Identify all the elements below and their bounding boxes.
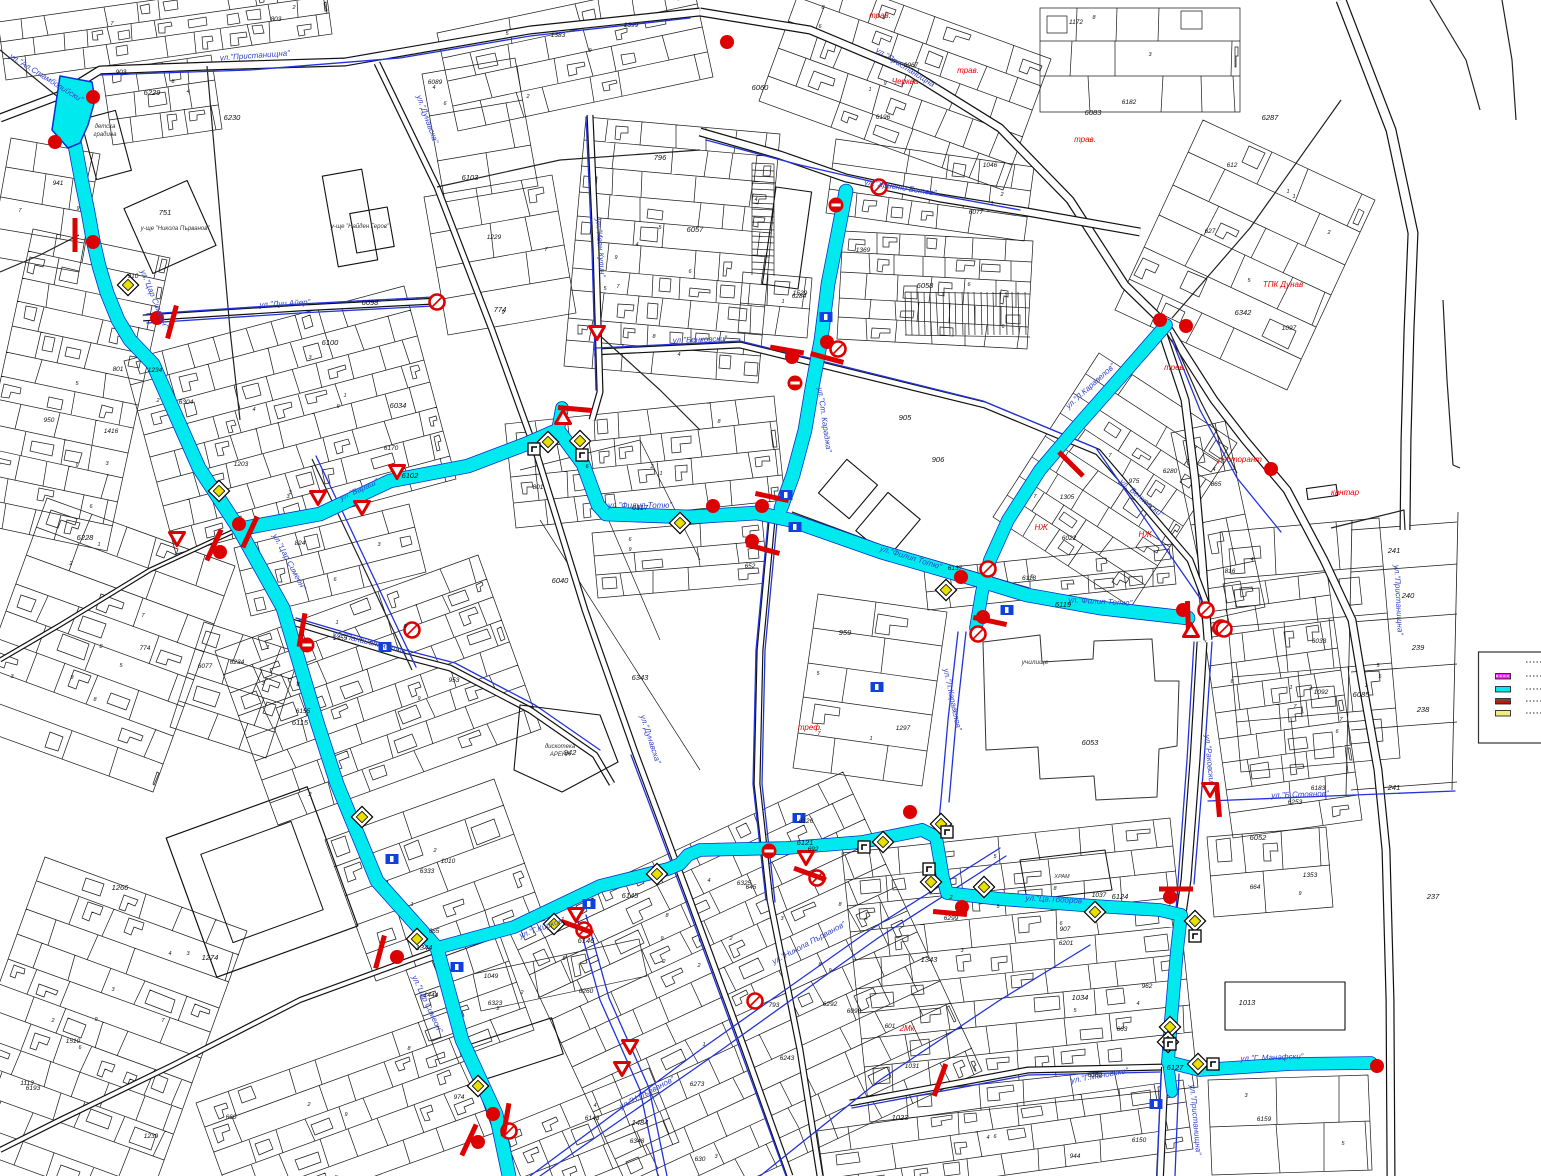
svg-text:601: 601	[885, 1023, 896, 1030]
svg-text:6159: 6159	[1257, 1116, 1272, 1123]
svg-text:974: 974	[454, 1094, 465, 1101]
svg-text:664: 664	[1250, 884, 1261, 891]
svg-text:4: 4	[677, 352, 680, 358]
svg-text:1: 1	[1286, 189, 1289, 195]
svg-text:4: 4	[754, 197, 757, 203]
svg-text:6343: 6343	[632, 673, 650, 682]
svg-text:6234: 6234	[230, 659, 245, 666]
svg-text:1203: 1203	[234, 461, 249, 468]
svg-text:кантар: кантар	[1331, 488, 1360, 497]
svg-text:6137: 6137	[948, 565, 963, 572]
svg-text:1383: 1383	[551, 32, 566, 39]
svg-text:6124: 6124	[1112, 892, 1129, 901]
svg-text:241: 241	[1387, 783, 1401, 792]
svg-text:692: 692	[808, 846, 819, 853]
svg-text:1229: 1229	[487, 234, 502, 241]
svg-text:4: 4	[593, 1103, 596, 1109]
svg-text:4: 4	[186, 89, 189, 95]
svg-text:6299: 6299	[944, 915, 959, 922]
svg-text:6067: 6067	[904, 62, 919, 69]
svg-text:1: 1	[781, 299, 784, 305]
svg-text:824: 824	[295, 540, 306, 547]
svg-text:6118: 6118	[1022, 575, 1036, 582]
svg-text:6201: 6201	[1059, 940, 1074, 947]
svg-text:652: 652	[745, 563, 756, 570]
svg-text:9: 9	[660, 936, 663, 942]
svg-text:трав.: трав.	[957, 66, 979, 75]
svg-text:1455: 1455	[333, 635, 348, 642]
svg-text:6022: 6022	[1062, 535, 1077, 542]
svg-text:239: 239	[1411, 643, 1425, 652]
svg-text:9: 9	[628, 547, 631, 553]
svg-text:6253: 6253	[1288, 799, 1303, 806]
svg-text:6348: 6348	[630, 1138, 645, 1145]
svg-text:1239: 1239	[144, 1133, 159, 1140]
svg-text:6052: 6052	[1250, 833, 1268, 842]
svg-text:2: 2	[50, 1018, 54, 1024]
svg-text:1344: 1344	[416, 943, 433, 952]
svg-text:4: 4	[1250, 557, 1253, 563]
svg-text:801: 801	[113, 366, 124, 373]
svg-text:1: 1	[410, 902, 413, 908]
svg-text:НЖ: НЖ	[1034, 523, 1048, 532]
svg-text:975: 975	[1129, 478, 1140, 485]
svg-text:9: 9	[614, 255, 617, 261]
svg-text:2Мк: 2Мк	[899, 1024, 916, 1033]
svg-text:трав.: трав.	[1074, 135, 1096, 144]
svg-text:1353: 1353	[1303, 872, 1318, 879]
svg-text:ресторант: ресторант	[1217, 455, 1262, 464]
svg-text:907: 907	[1060, 926, 1071, 933]
svg-text:906: 906	[932, 455, 945, 464]
svg-text:6323: 6323	[488, 1000, 503, 1007]
svg-text:2: 2	[291, 5, 295, 11]
svg-text:детска: детска	[95, 124, 116, 130]
svg-text:774: 774	[140, 645, 151, 652]
svg-text:6280: 6280	[1163, 468, 1178, 475]
svg-text:ТПК Дунав: ТПК Дунав	[1263, 280, 1303, 289]
svg-text:6229: 6229	[144, 88, 162, 97]
svg-text:1399: 1399	[624, 22, 639, 29]
svg-text:9: 9	[501, 310, 504, 316]
svg-text:1031: 1031	[905, 1063, 920, 1070]
svg-text:1510: 1510	[66, 1038, 81, 1045]
svg-text:950: 950	[44, 417, 55, 424]
svg-text:6150: 6150	[1132, 1137, 1147, 1144]
svg-text:4: 4	[168, 951, 171, 957]
svg-text:6119: 6119	[1055, 600, 1072, 609]
svg-text:6292: 6292	[823, 1001, 838, 1008]
svg-text:2: 2	[68, 561, 72, 567]
svg-text:9: 9	[76, 206, 79, 212]
svg-text:238: 238	[1416, 705, 1430, 714]
svg-text:612: 612	[1227, 162, 1238, 169]
svg-text:у-ще ”Никола Първанов”: у-ще ”Никола Първанов”	[140, 226, 211, 232]
svg-text:1: 1	[343, 393, 346, 399]
svg-text:2: 2	[525, 94, 529, 100]
svg-text:4: 4	[1136, 1001, 1139, 1007]
svg-text:793: 793	[769, 1002, 780, 1009]
svg-text:2: 2	[661, 959, 665, 965]
svg-text:1010: 1010	[441, 858, 456, 865]
svg-text:1343: 1343	[921, 955, 939, 964]
svg-text:944: 944	[1070, 1153, 1081, 1160]
svg-text:4: 4	[432, 85, 435, 91]
svg-text:1037: 1037	[1092, 892, 1107, 899]
svg-text:6127: 6127	[1167, 1063, 1185, 1072]
svg-text:6182: 6182	[1122, 99, 1137, 106]
svg-text:6060: 6060	[752, 83, 770, 92]
svg-text:6085: 6085	[1353, 690, 1371, 699]
svg-text:751: 751	[159, 208, 172, 217]
svg-text:6126: 6126	[799, 818, 814, 825]
svg-text:865: 865	[1211, 481, 1222, 488]
svg-text:1234: 1234	[148, 367, 163, 374]
svg-text:9: 9	[75, 463, 78, 469]
svg-text:дискотека: дискотека	[545, 744, 576, 750]
svg-text:6143: 6143	[585, 1115, 600, 1122]
svg-text:803: 803	[271, 16, 282, 23]
svg-text:1092: 1092	[1314, 689, 1329, 696]
svg-text:6146: 6146	[578, 936, 596, 945]
svg-text:1: 1	[1364, 683, 1367, 689]
svg-text:663: 663	[1117, 1026, 1128, 1033]
svg-text:6033: 6033	[1312, 638, 1327, 645]
svg-text:9: 9	[336, 404, 339, 410]
svg-text:953: 953	[449, 677, 460, 684]
svg-text:2: 2	[307, 792, 311, 798]
svg-text:240: 240	[1401, 591, 1415, 600]
svg-text:1049: 1049	[484, 973, 499, 980]
svg-text:6077: 6077	[198, 663, 213, 670]
svg-text:6162: 6162	[1088, 1072, 1103, 1079]
svg-text:1: 1	[659, 471, 662, 477]
svg-text:4: 4	[252, 407, 255, 413]
svg-text:НЖ: НЖ	[1138, 530, 1152, 539]
svg-text:2: 2	[432, 848, 436, 854]
svg-text:6183: 6183	[1311, 785, 1326, 792]
svg-text:ХРАМ: ХРАМ	[1053, 874, 1070, 880]
svg-text:1046: 1046	[983, 162, 998, 169]
svg-text:6228: 6228	[77, 533, 95, 542]
svg-text:801: 801	[533, 484, 544, 491]
svg-text:6170: 6170	[384, 445, 399, 452]
svg-text:2: 2	[728, 936, 732, 942]
svg-text:6155: 6155	[296, 708, 311, 715]
svg-text:1274: 1274	[202, 953, 219, 962]
svg-text:6284: 6284	[792, 293, 807, 300]
svg-text:6333: 6333	[420, 868, 435, 875]
svg-text:660: 660	[226, 1114, 237, 1121]
svg-text:903: 903	[116, 69, 127, 76]
svg-text:6103: 6103	[462, 173, 480, 182]
svg-text:2: 2	[519, 990, 523, 996]
svg-text:2: 2	[999, 192, 1003, 198]
svg-text:627: 627	[1205, 228, 1216, 235]
svg-text:1444: 1444	[424, 992, 439, 999]
svg-text:959: 959	[839, 628, 852, 637]
svg-text:6083: 6083	[1085, 108, 1103, 117]
svg-text:6230: 6230	[224, 113, 242, 122]
svg-text:6053: 6053	[1082, 738, 1100, 747]
svg-text:1266: 1266	[112, 883, 130, 892]
svg-text:6196: 6196	[876, 114, 891, 121]
svg-text:6304: 6304	[179, 399, 194, 406]
svg-text:6115: 6115	[292, 718, 309, 727]
svg-text:4: 4	[1212, 467, 1215, 473]
svg-text:1172: 1172	[1069, 19, 1083, 26]
svg-text:Черква: Черква	[892, 77, 919, 86]
svg-text:2: 2	[155, 398, 159, 404]
svg-text:4: 4	[986, 1135, 989, 1141]
svg-text:6034: 6034	[390, 401, 407, 410]
svg-text:6273: 6273	[690, 1081, 705, 1088]
svg-text:905: 905	[899, 413, 912, 422]
svg-text:6193: 6193	[26, 1085, 41, 1092]
svg-text:6100: 6100	[322, 338, 340, 347]
svg-text:2: 2	[1326, 230, 1330, 236]
svg-text:6260: 6260	[579, 988, 594, 995]
svg-text:2: 2	[649, 464, 653, 470]
svg-text:трав.: трав.	[869, 11, 891, 20]
svg-text:6325: 6325	[737, 880, 752, 887]
svg-text:1: 1	[1292, 194, 1295, 200]
svg-text:962: 962	[1142, 983, 1153, 990]
svg-text:6102: 6102	[402, 471, 420, 480]
svg-text:у-ще ”Найден Геров”: у-ще ”Найден Геров”	[330, 223, 390, 230]
svg-text:1416: 1416	[104, 428, 119, 435]
svg-text:6342: 6342	[1235, 308, 1253, 317]
svg-text:2: 2	[948, 895, 952, 901]
svg-text:АРЕНА: АРЕНА	[549, 752, 570, 758]
svg-text:1097: 1097	[1282, 325, 1297, 332]
svg-text:6243: 6243	[780, 1055, 795, 1062]
svg-text:9: 9	[883, 81, 886, 87]
svg-text:градина: градина	[94, 132, 118, 138]
svg-text:1297: 1297	[896, 725, 911, 732]
svg-text:796: 796	[654, 153, 667, 162]
svg-text:6077: 6077	[969, 209, 984, 216]
svg-text:816: 816	[1225, 568, 1236, 575]
svg-text:1305: 1305	[1060, 494, 1075, 501]
svg-text:6040: 6040	[552, 576, 570, 585]
svg-text:1: 1	[1289, 685, 1292, 691]
svg-text:910: 910	[128, 273, 139, 280]
svg-text:1: 1	[97, 542, 100, 548]
svg-text:училище: училище	[1021, 659, 1049, 666]
svg-text:6117: 6117	[632, 503, 649, 512]
svg-text:4: 4	[707, 878, 710, 884]
svg-text:6287: 6287	[1262, 113, 1280, 122]
svg-text:1: 1	[266, 645, 269, 651]
svg-text:1: 1	[702, 1042, 705, 1048]
svg-text:1: 1	[869, 736, 872, 742]
svg-text:трев.: трев.	[1164, 363, 1186, 372]
svg-text:630: 630	[695, 1156, 706, 1163]
svg-text:1: 1	[335, 620, 338, 626]
svg-text:2: 2	[696, 963, 700, 969]
svg-text:1013: 1013	[1239, 998, 1257, 1007]
svg-text:9: 9	[94, 1017, 97, 1023]
svg-text:237: 237	[1426, 892, 1440, 901]
svg-text:6058: 6058	[917, 281, 935, 290]
svg-text:1023: 1023	[892, 1113, 910, 1122]
svg-text:1: 1	[990, 201, 993, 207]
svg-text:1484: 1484	[632, 1118, 649, 1127]
svg-text:6098: 6098	[847, 1008, 862, 1015]
svg-text:9: 9	[828, 968, 831, 974]
svg-text:1034: 1034	[1072, 993, 1089, 1002]
svg-text:9: 9	[344, 1112, 347, 1118]
svg-text:665: 665	[429, 928, 440, 935]
svg-text:1: 1	[868, 87, 871, 93]
svg-text:6057: 6057	[687, 225, 705, 234]
svg-text:241: 241	[1387, 546, 1401, 555]
svg-text:9: 9	[1298, 891, 1301, 897]
svg-text:941: 941	[53, 180, 64, 187]
svg-text:6098: 6098	[362, 298, 380, 307]
svg-text:4: 4	[635, 242, 638, 248]
svg-text:9: 9	[417, 696, 420, 702]
svg-text:2: 2	[306, 1102, 310, 1108]
svg-text:1369: 1369	[856, 247, 871, 254]
svg-text:6145: 6145	[622, 891, 640, 900]
svg-text:9: 9	[588, 48, 591, 54]
